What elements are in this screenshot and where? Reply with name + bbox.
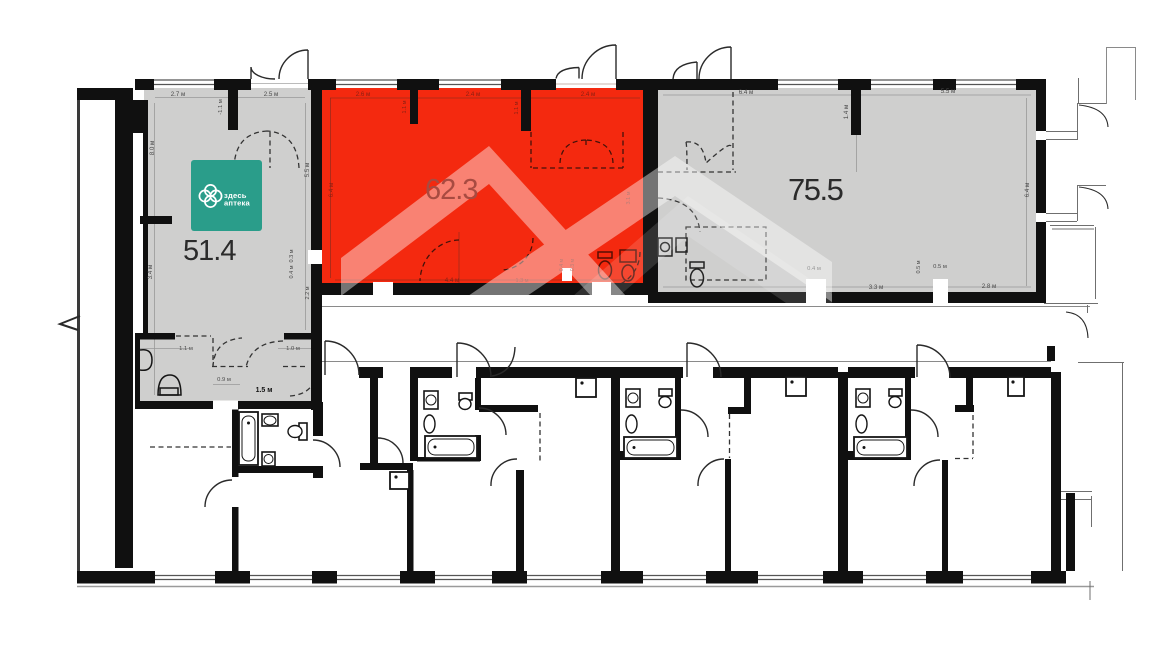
svg-text:1.1 м: 1.1 м — [402, 100, 408, 113]
svg-text:1.4 м: 1.4 м — [843, 105, 850, 120]
svg-text:2.6 м: 2.6 м — [356, 91, 371, 98]
svg-text:5.5 м: 5.5 м — [304, 163, 311, 178]
svg-text:2.8 м: 2.8 м — [982, 283, 997, 290]
svg-text:аптека: аптека — [224, 199, 251, 208]
svg-text:6.4 м: 6.4 м — [739, 89, 754, 96]
svg-text:0.9 м: 0.9 м — [217, 377, 231, 383]
svg-text:1.0 м: 1.0 м — [286, 346, 300, 352]
svg-text:2.2 м: 2.2 м — [305, 286, 311, 299]
svg-text:4.4 м: 4.4 м — [445, 277, 460, 284]
svg-text:-1.1 м: -1.1 м — [218, 99, 224, 115]
svg-text:1.1 м: 1.1 м — [179, 346, 193, 352]
svg-text:8.0 м: 8.0 м — [149, 141, 156, 156]
svg-text:3.3 м: 3.3 м — [869, 284, 884, 291]
svg-text:0.3 м: 0.3 м — [289, 249, 295, 262]
svg-text:75.5: 75.5 — [788, 172, 843, 207]
svg-text:2.4 м: 2.4 м — [466, 91, 481, 98]
svg-text:51.4: 51.4 — [183, 235, 236, 267]
svg-text:1.5 м: 1.5 м — [256, 387, 273, 394]
svg-text:2.5 м: 2.5 м — [264, 91, 279, 98]
svg-text:6.4 м: 6.4 м — [1024, 183, 1031, 198]
svg-text:5.5 м: 5.5 м — [941, 88, 956, 95]
svg-text:62.3: 62.3 — [425, 174, 477, 206]
svg-text:0.5 м: 0.5 м — [916, 260, 922, 273]
svg-text:2.7 м: 2.7 м — [171, 91, 186, 98]
svg-text:3.4 м: 3.4 м — [147, 265, 154, 280]
svg-text:1.1 м: 1.1 м — [514, 101, 520, 114]
svg-text:0.4 м: 0.4 м — [289, 265, 295, 278]
svg-text:6.4 м: 6.4 м — [328, 183, 335, 198]
svg-text:0.5 м: 0.5 м — [933, 264, 947, 270]
svg-text:2.4 м: 2.4 м — [581, 91, 596, 98]
